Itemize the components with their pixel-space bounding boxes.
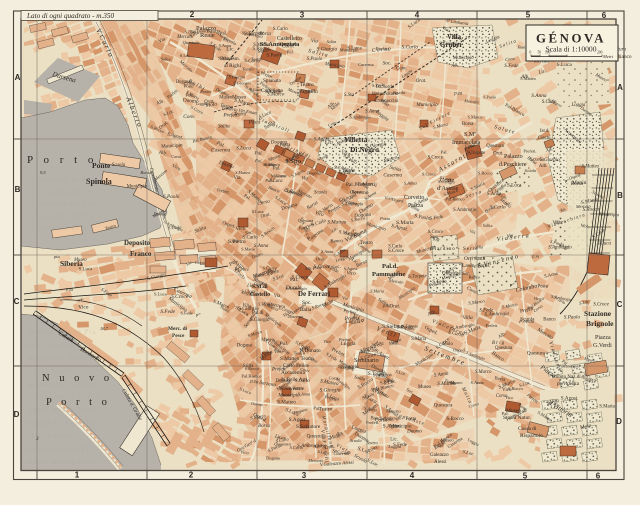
svg-text:Banco: Banco [543, 318, 556, 323]
svg-text:GÉNOVA: GÉNOVA [536, 32, 606, 46]
svg-text:4: 4 [415, 11, 420, 20]
svg-text:S.Luca: S.Luca [557, 62, 573, 68]
svg-text:Dogana: Dogana [266, 456, 280, 461]
svg-text:Teatro: Teatro [293, 386, 305, 391]
svg-text:S.Carlo: S.Carlo [242, 235, 258, 241]
svg-text:Pal.: Pal. [286, 50, 294, 55]
svg-text:A: A [15, 73, 21, 82]
svg-text:Caserma: Caserma [211, 148, 230, 154]
svg-text:Pesce: Pesce [172, 333, 185, 339]
svg-text:S.Anna: S.Anna [219, 43, 232, 48]
svg-text:S.Ambrogio: S.Ambrogio [349, 115, 371, 120]
svg-text:Scuola: Scuola [393, 90, 406, 95]
svg-text:Pal.: Pal. [254, 158, 263, 164]
svg-text:Salita: Salita [243, 364, 255, 369]
svg-text:Teatro: Teatro [300, 82, 314, 88]
svg-text:Via: Via [342, 295, 348, 300]
svg-text:Pal.: Pal. [441, 149, 448, 154]
svg-text:Lic.: Lic. [325, 140, 333, 146]
svg-text:maggio in Cont Tan: maggio in Cont Tan [25, 419, 99, 427]
svg-text:Prefett.: Prefett. [376, 47, 390, 52]
svg-text:S.Carlo: S.Carlo [295, 379, 310, 384]
svg-text:Banco: Banco [352, 189, 363, 194]
svg-text:Questura: Questura [527, 352, 545, 357]
svg-text:giramondo chiusa: giramondo chiusa [28, 380, 94, 388]
svg-text:Teatro: Teatro [294, 350, 306, 355]
svg-text:S.Giorgio: S.Giorgio [317, 46, 338, 52]
svg-text:S.Carlo: S.Carlo [388, 244, 403, 249]
svg-text:6: 6 [602, 11, 607, 20]
svg-text:S.Matteo: S.Matteo [520, 76, 536, 81]
svg-text:Posta: Posta [379, 216, 391, 221]
svg-text:S.Fede: S.Fede [160, 309, 175, 315]
svg-text:Alb.: Alb. [158, 150, 168, 157]
svg-text:Borsa: Borsa [140, 170, 151, 175]
svg-text:Museo: Museo [451, 380, 464, 385]
svg-text:S.Croce: S.Croce [593, 303, 610, 308]
svg-text:pᵗª: pᵗª [510, 282, 515, 287]
svg-text:Questura: Questura [183, 40, 200, 45]
svg-text:si dila facelli: si dila facelli [28, 432, 79, 440]
svg-text:pᵗª: pᵗª [196, 312, 201, 317]
svg-text:S.Rocco: S.Rocco [446, 416, 464, 422]
svg-text:Dogana: Dogana [276, 379, 291, 384]
svg-text:Palazzo: Palazzo [504, 154, 523, 160]
svg-text:Pal.: Pal. [253, 151, 263, 157]
svg-text:opera museo Altro: opera museo Altro [28, 406, 97, 414]
svg-text:S.Giorgio: S.Giorgio [229, 75, 247, 80]
svg-text:S.Carlo: S.Carlo [168, 225, 182, 231]
svg-text:Borsa: Borsa [258, 424, 270, 429]
svg-text:Posta: Posta [280, 143, 292, 148]
svg-text:Conv.: Conv. [282, 43, 294, 49]
svg-text:Merc. di: Merc. di [168, 326, 188, 332]
svg-text:Giardino - Serre: Giardino - Serre [430, 247, 479, 252]
svg-text:Via: Via [233, 175, 241, 181]
svg-text:S.Carlo: S.Carlo [290, 445, 304, 450]
svg-text:S.Marco: S.Marco [475, 370, 492, 375]
svg-text:Scuola: Scuola [254, 281, 267, 286]
svg-text:Teatro: Teatro [366, 441, 379, 446]
svg-text:S.Maria: S.Maria [241, 247, 255, 252]
svg-text:Metri: Metri [602, 54, 614, 59]
svg-text:A: A [617, 83, 623, 92]
svg-text:S.Luca: S.Luca [236, 145, 251, 151]
svg-text:0: 0 [530, 51, 532, 55]
svg-text:Questura: Questura [307, 434, 327, 440]
svg-text:S.Matteo: S.Matteo [327, 220, 346, 226]
svg-text:Salita: Salita [161, 57, 171, 62]
svg-text:si alla facelli: si alla facelli [25, 367, 76, 375]
svg-text:Duomo: Duomo [406, 430, 422, 435]
svg-text:1: 1 [75, 471, 80, 480]
svg-text:stazione di Pia: stazione di Pia [38, 176, 94, 184]
svg-text:Teatro: Teatro [251, 56, 262, 61]
svg-text:il porto antico: il porto antico [38, 188, 92, 196]
svg-text:S.Croce: S.Croce [422, 172, 436, 177]
svg-text:Prefett.: Prefett. [486, 323, 499, 328]
svg-text:Lato di ogni quadrato - m.350: Lato di ogni quadrato - m.350 [26, 12, 114, 20]
svg-text:Alessi: Alessi [434, 460, 447, 465]
svg-text:S.Luca: S.Luca [79, 267, 93, 272]
svg-text:Dogana: Dogana [306, 170, 321, 175]
svg-text:S.Lor.: S.Lor. [185, 30, 196, 35]
svg-text:3: 3 [300, 11, 305, 20]
svg-text:Conv.: Conv. [342, 450, 352, 455]
svg-text:Posta: Posta [538, 285, 549, 290]
svg-text:S.Anna: S.Anna [254, 243, 269, 249]
svg-text:S.Torpete: S.Torpete [408, 274, 427, 280]
svg-text:P o r t o: P o r t o [27, 154, 97, 166]
svg-text:Ponte: Ponte [92, 161, 111, 170]
svg-text:S.Sta: S.Sta [344, 93, 354, 98]
svg-text:Soc.: Soc. [383, 61, 392, 67]
svg-text:Vico: Vico [235, 226, 246, 233]
svg-text:Risparmio: Risparmio [520, 433, 543, 439]
svg-text:Corso: Corso [496, 394, 508, 399]
svg-text:Loggia: Loggia [195, 101, 208, 106]
svg-text:Conv.: Conv. [465, 143, 475, 148]
svg-text:Orat.: Orat. [316, 257, 326, 262]
svg-text:Posta: Posta [199, 89, 211, 94]
svg-text:S.Paolo: S.Paolo [397, 324, 414, 330]
svg-text:Salita: Salita [326, 39, 336, 44]
svg-text:Loggia: Loggia [387, 444, 402, 449]
svg-text:S.Croce: S.Croce [428, 230, 444, 235]
svg-text:Dogana: Dogana [237, 344, 253, 349]
svg-text:100: 100 [545, 51, 551, 55]
svg-text:p.za: p.za [532, 253, 539, 258]
svg-text:Teatro: Teatro [234, 113, 247, 118]
svg-text:S.Paolo: S.Paolo [307, 57, 323, 62]
svg-text:stazione di Pia: stazione di Pia [38, 224, 94, 232]
svg-text:5: 5 [526, 11, 531, 20]
svg-text:S.Croce: S.Croce [428, 155, 443, 160]
svg-text:D: D [616, 417, 622, 426]
svg-text:S.Ambrogio: S.Ambrogio [453, 208, 477, 213]
svg-text:Pal.Bianco: Pal.Bianco [241, 373, 262, 378]
svg-text:S.Maria: S.Maria [411, 337, 427, 342]
svg-text:S.Matteo: S.Matteo [582, 164, 600, 169]
svg-text:Posta: Posta [248, 121, 261, 126]
svg-text:d.Peschiere: d.Peschiere [499, 162, 527, 168]
svg-text:C: C [14, 297, 20, 306]
svg-text:Via: Via [302, 176, 309, 181]
svg-text:Scala di 1:10000: Scala di 1:10000 [545, 45, 596, 54]
svg-text:S.Anna: S.Anna [321, 249, 333, 254]
svg-text:Corso: Corso [195, 260, 205, 265]
svg-text:Prefett.: Prefett. [523, 149, 536, 154]
svg-text:Teatro: Teatro [242, 66, 254, 71]
svg-text:Banco: Banco [469, 274, 481, 279]
svg-text:Posta: Posta [406, 417, 417, 422]
svg-text:Vico: Vico [323, 339, 330, 344]
svg-text:Conv.: Conv. [183, 114, 195, 120]
svg-text:S.Fede: S.Fede [432, 279, 447, 285]
svg-text:opera museo Altro: opera museo Altro [28, 458, 97, 466]
svg-text:S.Ambrogio: S.Ambrogio [285, 286, 307, 291]
svg-text:Piazza: Piazza [595, 335, 611, 341]
svg-text:6: 6 [596, 472, 601, 481]
svg-text:Cassa di: Cassa di [518, 426, 537, 432]
svg-text:Corso: Corso [171, 154, 181, 159]
svg-text:S.Luca: S.Luca [347, 45, 362, 51]
svg-text:Pal.: Pal. [278, 341, 288, 347]
svg-text:B: B [617, 191, 623, 200]
svg-text:S.Luca: S.Luca [507, 183, 522, 189]
svg-text:instrumento si Pia: instrumento si Pia [25, 445, 94, 453]
svg-text:Via: Via [311, 38, 319, 44]
svg-text:S.Agost.: S.Agost. [561, 395, 579, 401]
svg-text:Alb.: Alb. [559, 208, 567, 213]
svg-text:Brignole: Brignole [586, 319, 614, 328]
svg-text:Municipio: Municipio [453, 56, 474, 61]
svg-text:Scuola: Scuola [112, 163, 126, 168]
svg-text:Villa: Villa [475, 245, 484, 250]
svg-text:S.Anna: S.Anna [365, 110, 380, 115]
svg-text:Istituto Naz.di: Istituto Naz.di [552, 375, 581, 380]
svg-text:Pal.: Pal. [264, 178, 273, 183]
svg-text:Teatro: Teatro [319, 406, 333, 412]
svg-text:Museo: Museo [73, 258, 87, 263]
svg-text:S.Anna: S.Anna [531, 93, 547, 99]
svg-text:Scuola: Scuola [520, 317, 535, 323]
svg-text:Pal.d.: Pal.d. [382, 263, 398, 270]
svg-text:C: C [617, 300, 623, 309]
svg-text:S.Luca: S.Luca [597, 241, 611, 247]
svg-text:S.Paolo: S.Paolo [163, 194, 180, 200]
svg-text:Municipio: Municipio [599, 213, 620, 219]
svg-text:Municipio: Municipio [277, 393, 300, 399]
svg-text:S.Rocco: S.Rocco [252, 46, 270, 52]
svg-text:G.Verdi: G.Verdi [593, 343, 612, 349]
svg-text:Museo: Museo [418, 385, 432, 390]
svg-text:Orat.: Orat. [390, 305, 401, 310]
svg-text:Franco: Franco [130, 250, 152, 258]
svg-text:Pal.Bianco: Pal.Bianco [444, 196, 465, 201]
svg-text:p.za: p.za [66, 286, 74, 292]
svg-text:S.Luca: S.Luca [154, 292, 167, 297]
svg-text:S.Fede: S.Fede [504, 63, 519, 69]
svg-text:Vico: Vico [346, 270, 356, 277]
svg-text:Mercato: Mercato [575, 204, 592, 209]
svg-text:battello sei qua: battello sei qua [38, 200, 96, 208]
svg-text:p.za: p.za [312, 265, 322, 271]
svg-text:S.Giorgio: S.Giorgio [540, 157, 560, 163]
svg-text:5: 5 [523, 472, 528, 481]
svg-text:Stazione: Stazione [584, 309, 612, 318]
svg-text:Osped.: Osped. [453, 348, 466, 353]
svg-text:D: D [14, 410, 20, 419]
svg-text:S.Matteo: S.Matteo [235, 170, 250, 175]
svg-text:Soc.: Soc. [462, 272, 470, 277]
svg-text:Loggia: Loggia [341, 341, 357, 347]
svg-text:S.Anna: S.Anna [404, 180, 418, 185]
svg-text:Villa: Villa [553, 221, 563, 226]
svg-text:Deposito: Deposito [124, 239, 151, 247]
svg-text:S.Ambrogio: S.Ambrogio [485, 311, 510, 318]
svg-text:Mercato: Mercato [307, 458, 324, 463]
svg-text:Mercato: Mercato [271, 174, 287, 179]
svg-text:S.Giorgio: S.Giorgio [439, 42, 458, 47]
svg-text:Orat.: Orat. [416, 78, 427, 84]
svg-text:S.Luca: S.Luca [252, 209, 264, 214]
svg-text:Questura: Questura [486, 144, 504, 149]
svg-text:S.Ambrogio: S.Ambrogio [548, 246, 572, 251]
svg-text:S.Fede: S.Fede [181, 310, 193, 315]
svg-text:S.Maria: S.Maria [599, 405, 615, 410]
svg-text:S.Anna: S.Anna [298, 391, 311, 396]
svg-text:S.Paolo: S.Paolo [372, 82, 385, 88]
svg-text:B: B [15, 185, 21, 194]
svg-text:S.Torpete: S.Torpete [244, 30, 265, 37]
svg-text:Borsa: Borsa [462, 122, 474, 127]
svg-text:S.Matteo: S.Matteo [277, 399, 296, 405]
svg-text:Galeazzo: Galeazzo [430, 453, 449, 458]
svg-text:p.za: p.za [453, 92, 463, 97]
svg-text:Municipio: Municipio [415, 102, 438, 108]
svg-text:S.Mª: S.Mª [464, 132, 476, 138]
svg-text:Pal.: Pal. [313, 406, 321, 412]
svg-text:stazione di Pia: stazione di Pia [38, 212, 94, 220]
svg-text:S.Carlo: S.Carlo [265, 89, 281, 95]
svg-text:S.Rocco: S.Rocco [478, 170, 494, 175]
svg-text:Caserma: Caserma [383, 173, 402, 179]
svg-text:Ist.d.: Ist.d. [540, 129, 550, 134]
svg-text:50: 50 [538, 51, 542, 55]
svg-text:Scuola: Scuola [314, 191, 327, 196]
svg-text:Via: Via [274, 294, 282, 299]
svg-text:S.Salvatore: S.Salvatore [296, 424, 321, 430]
svg-text:Questura: Questura [495, 346, 513, 351]
svg-text:Prefett.: Prefett. [338, 337, 352, 342]
svg-text:S.Croce: S.Croce [241, 289, 256, 294]
svg-text:S.Croce: S.Croce [292, 274, 309, 280]
svg-text:Banco: Banco [330, 239, 343, 245]
svg-text:Villa: Villa [463, 315, 473, 321]
svg-text:S.Torpete: S.Torpete [368, 372, 387, 377]
svg-text:200: 200 [597, 51, 603, 55]
svg-text:S.Marco: S.Marco [468, 114, 484, 119]
svg-text:Vico: Vico [78, 304, 88, 310]
svg-text:Questura: Questura [434, 402, 453, 408]
svg-text:3: 3 [302, 471, 307, 480]
svg-text:Salita: Salita [483, 223, 493, 228]
svg-text:previdenza: previdenza [557, 382, 580, 387]
svg-text:S.Agost.: S.Agost. [383, 424, 402, 430]
svg-text:S.Maria: S.Maria [370, 288, 384, 293]
svg-text:S.Ambrogio: S.Ambrogio [341, 203, 364, 208]
svg-text:S.Agost.: S.Agost. [289, 417, 307, 423]
svg-text:Alb.: Alb. [450, 63, 459, 68]
svg-text:Caserma: Caserma [358, 62, 373, 67]
svg-text:Scuola: Scuola [350, 438, 363, 443]
svg-text:Alb.: Alb. [335, 432, 344, 437]
svg-text:4: 4 [410, 471, 415, 480]
svg-text:S.Paolo: S.Paolo [266, 52, 282, 58]
svg-text:insegnamento si Pia: insegnamento si Pia [25, 393, 100, 401]
svg-text:S.Carlo: S.Carlo [273, 27, 288, 32]
svg-text:Conv.: Conv. [383, 418, 394, 423]
svg-text:Orat.: Orat. [493, 152, 503, 157]
svg-text:S.Croce: S.Croce [263, 266, 277, 271]
svg-text:Alb.: Alb. [432, 236, 440, 242]
svg-text:Prefett.: Prefett. [366, 420, 379, 425]
svg-text:Ciechi: Ciechi [538, 136, 551, 141]
svg-text:S.Croce: S.Croce [388, 249, 405, 254]
svg-text:2: 2 [189, 471, 194, 480]
svg-text:Scuola: Scuola [525, 168, 537, 173]
svg-text:Alb.: Alb. [304, 266, 312, 271]
svg-text:Prefett.: Prefett. [271, 368, 287, 373]
svg-text:S.Torpete: S.Torpete [467, 151, 485, 156]
svg-text:S.Marco: S.Marco [218, 56, 234, 61]
svg-text:Municipio: Municipio [127, 184, 148, 189]
svg-text:S.Paolo: S.Paolo [483, 95, 496, 100]
svg-text:S.Lor.: S.Lor. [180, 53, 191, 58]
svg-text:Salita: Salita [218, 125, 230, 130]
svg-text:2: 2 [190, 10, 195, 19]
svg-text:Pal.: Pal. [273, 167, 280, 172]
svg-text:S.Paolo: S.Paolo [564, 314, 581, 320]
svg-text:Lic.: Lic. [390, 438, 398, 443]
svg-text:Prefett.: Prefett. [344, 315, 361, 322]
svg-text:Borsa: Borsa [571, 181, 584, 187]
svg-text:al Righi: al Righi [224, 63, 241, 69]
svg-text:Duomo: Duomo [153, 211, 168, 216]
svg-text:Alb.: Alb. [539, 164, 547, 169]
svg-text:S.Carlo: S.Carlo [402, 45, 419, 51]
